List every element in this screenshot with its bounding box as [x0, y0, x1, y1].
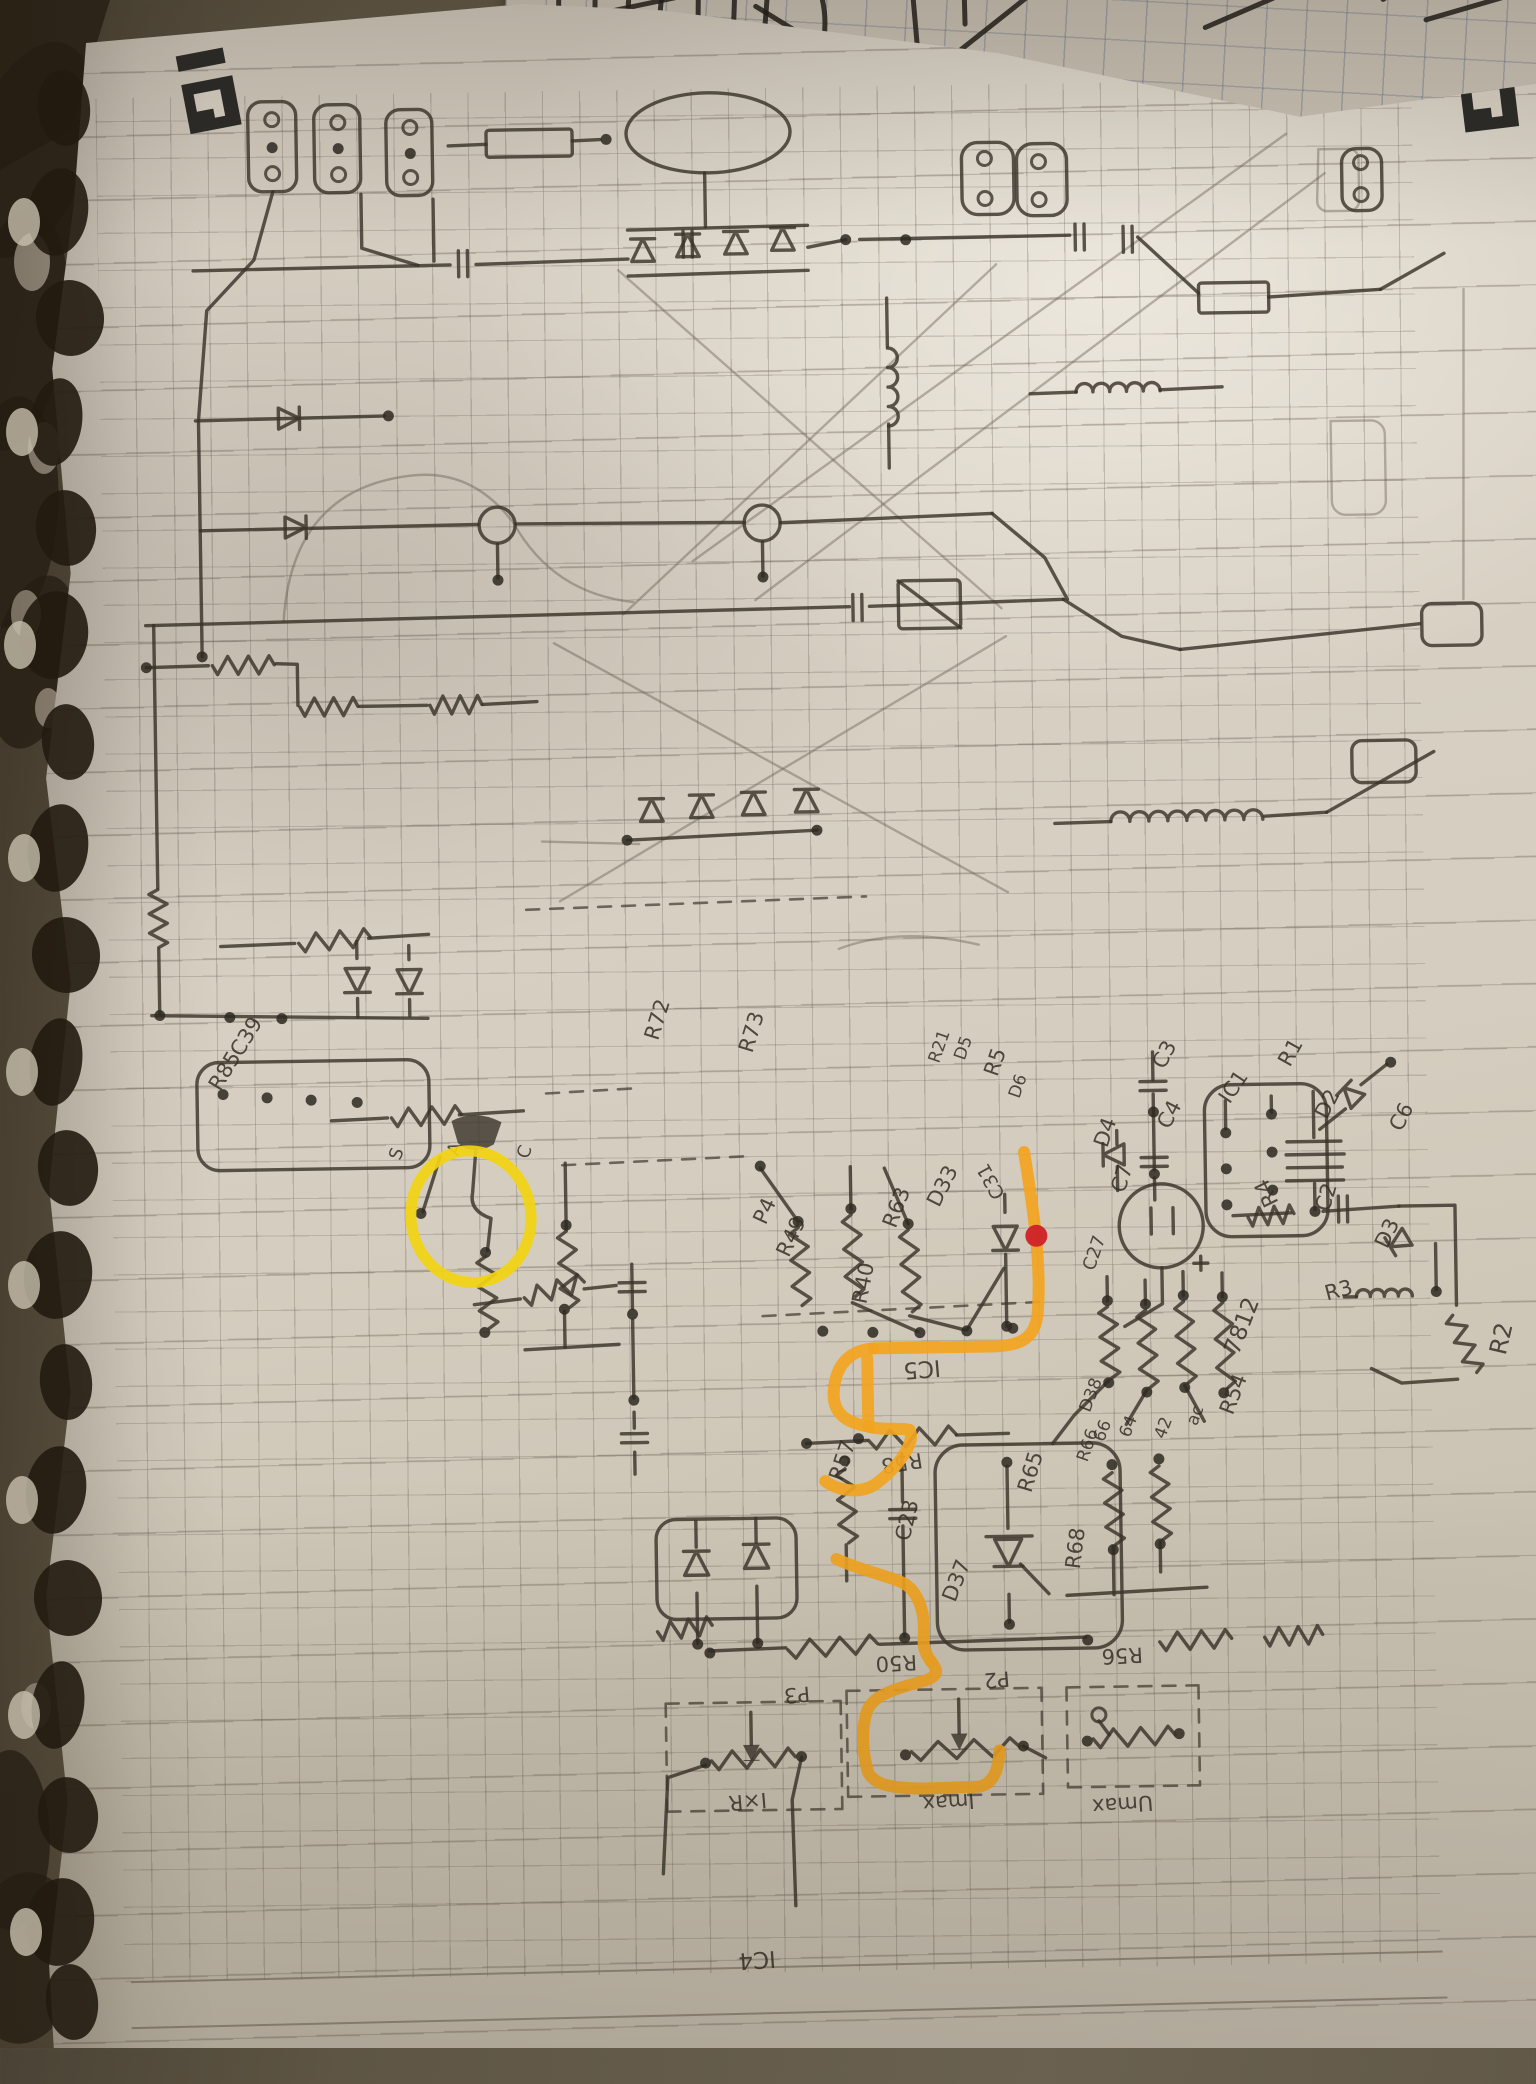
- component-label: IC5: [902, 1354, 942, 1383]
- component-label: R4: [1249, 1175, 1283, 1211]
- component-label: R54: [1215, 1371, 1252, 1418]
- component-label: D5: [950, 1034, 977, 1063]
- component-label: R57: [824, 1437, 860, 1484]
- component-label: 7812: [1220, 1294, 1265, 1358]
- pencil-strokes: [276, 131, 1474, 958]
- component-label: C31: [973, 1160, 1010, 1203]
- photo-scene: C39R85R72R73R21D5R5D6C3C4IC1R1D2C6D4C7R4…: [0, 0, 1536, 2048]
- component-label: P4: [748, 1194, 781, 1228]
- circuit-sketch: C39R85R72R73R21D5R5D6C3C4IC1R1D2C6D4C7R4…: [0, 0, 1536, 2060]
- component-label: R56: [1101, 1642, 1143, 1668]
- component-label: ac: [1183, 1403, 1209, 1429]
- component-label: R72: [640, 996, 675, 1043]
- component-label: D38: [1076, 1375, 1107, 1415]
- component-label: R68: [1061, 1526, 1090, 1570]
- component-label: C4: [1152, 1096, 1186, 1132]
- component-label: P2: [983, 1666, 1011, 1692]
- sheet-content: C39R85R72R73R21D5R5D6C3C4IC1R1D2C6D4C7R4…: [0, 0, 1536, 2084]
- component-label: R5: [979, 1045, 1011, 1079]
- component-label: Umax: [1091, 1790, 1154, 1818]
- component-label: R50: [875, 1650, 917, 1676]
- component-label: R66: [1073, 1426, 1103, 1464]
- component-label: C6: [1384, 1099, 1418, 1135]
- component-label: R1: [1273, 1034, 1308, 1070]
- component-label: I×R: [728, 1788, 768, 1815]
- component-label: D6: [1005, 1072, 1032, 1101]
- component-label: R2: [1484, 1320, 1519, 1357]
- component-label: 64: [1116, 1413, 1142, 1440]
- component-label: R73: [734, 1009, 769, 1056]
- component-label: C7: [1106, 1161, 1137, 1195]
- component-label: IC4: [737, 1945, 776, 1973]
- component-label: 42: [1151, 1414, 1177, 1441]
- component-label: R21: [925, 1028, 955, 1066]
- component-label: C27: [1079, 1233, 1110, 1273]
- orange-highlight-path: [862, 1660, 1000, 1789]
- component-label: R40: [847, 1260, 879, 1305]
- red-dot-marker: [1025, 1225, 1047, 1247]
- orange-highlight-path: [833, 1348, 874, 1427]
- component-label: S: [385, 1145, 409, 1163]
- component-label: R49: [771, 1213, 810, 1261]
- highlighter-annotations: [401, 1134, 1056, 1797]
- component-label: R65: [1013, 1448, 1048, 1495]
- component-labels: C39R85R72R73R21D5R5D6C3C4IC1R1D2C6D4C7R4…: [203, 983, 1529, 1982]
- component-label: C: [513, 1143, 537, 1162]
- notebook-page: C39R85R72R73R21D5R5D6C3C4IC1R1D2C6D4C7R4…: [0, 0, 1536, 2048]
- component-label: D37: [937, 1556, 975, 1605]
- component-label: C23: [891, 1497, 924, 1543]
- component-label: IC1: [1214, 1066, 1253, 1108]
- component-label: R3: [1322, 1275, 1355, 1305]
- component-label: P3: [783, 1682, 811, 1708]
- component-label: D33: [922, 1161, 963, 1210]
